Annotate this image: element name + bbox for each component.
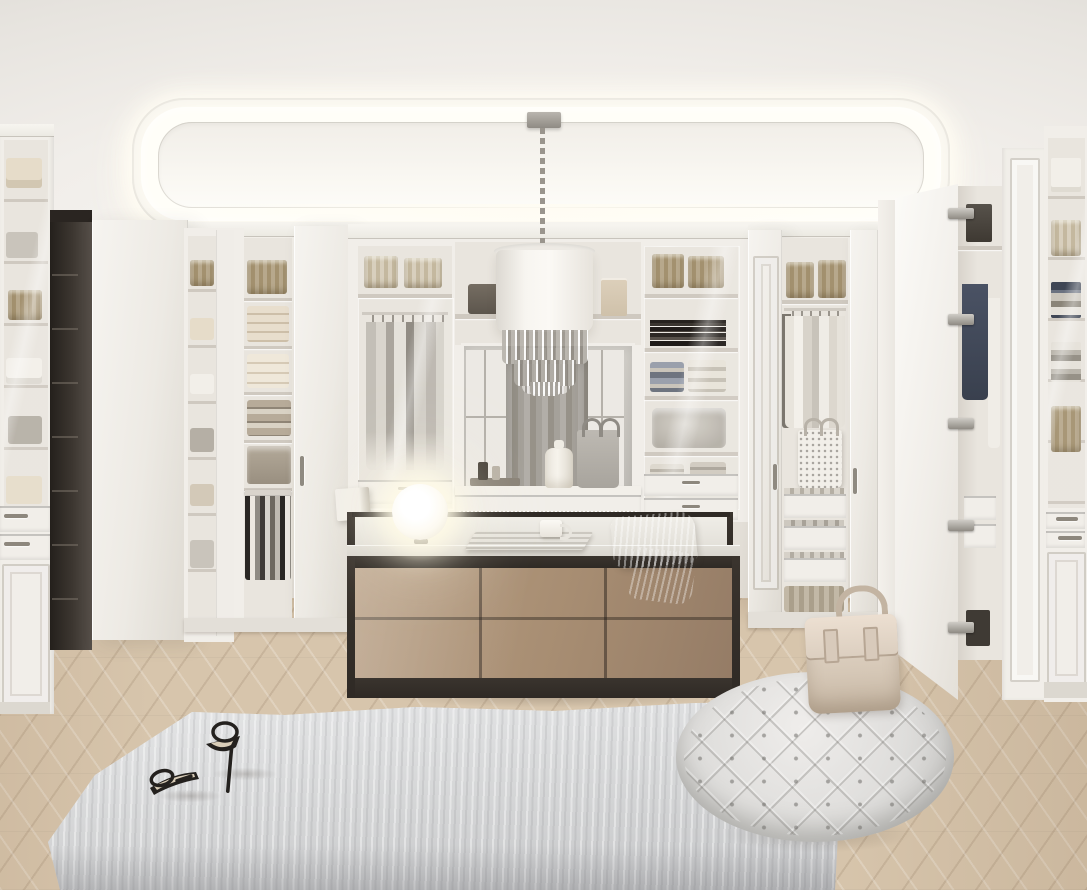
gift-bag xyxy=(601,278,627,316)
door-hinge xyxy=(948,314,974,325)
drawer-handle xyxy=(1058,536,1082,540)
shelf xyxy=(244,440,292,443)
bag-flap xyxy=(804,614,898,659)
navy-garment xyxy=(962,284,988,400)
right-wardrobe-left-door xyxy=(748,230,782,614)
gray-tote-bag xyxy=(577,430,619,488)
sweater-stack xyxy=(247,400,291,436)
center-crown xyxy=(348,224,748,238)
jar-lid xyxy=(554,440,564,449)
shelf xyxy=(244,346,292,349)
open-drawer xyxy=(784,526,846,550)
left-cabinet-drawer xyxy=(0,506,50,532)
walk-in-closet-scene xyxy=(0,0,1087,890)
stiletto-heel xyxy=(226,745,234,793)
door-hinge xyxy=(948,418,974,429)
hanging-shirts xyxy=(785,316,845,428)
perforated-tote xyxy=(798,430,842,488)
island-plinth xyxy=(355,678,732,698)
storage-bin xyxy=(190,540,214,568)
left-wardrobe-open-door xyxy=(294,226,352,618)
tote-handle xyxy=(600,418,620,437)
right-wardrobe-interior xyxy=(782,238,848,614)
left-cabinet-plinth xyxy=(0,702,50,714)
tote-handle xyxy=(820,418,839,436)
bag-strap xyxy=(863,627,880,662)
right-wardrobe-right-door xyxy=(850,230,878,632)
island-side-frame xyxy=(732,556,740,698)
right-glass-cabinet xyxy=(1044,126,1087,702)
door-hinge xyxy=(948,520,974,531)
stiletto-sandals xyxy=(140,712,280,822)
sphere-lamp xyxy=(392,484,448,540)
left-cabinet-crown xyxy=(0,124,54,136)
shelf xyxy=(244,392,292,395)
perfume-bottle xyxy=(492,466,500,480)
cream-handbag xyxy=(797,583,908,718)
fabric-bin xyxy=(247,446,291,484)
door-hinge xyxy=(948,208,974,219)
drawer-handle xyxy=(4,514,28,518)
door-hinge xyxy=(948,622,974,633)
plinth xyxy=(1044,682,1087,698)
hanging-trousers xyxy=(245,496,291,580)
trouser-rack-rail xyxy=(245,490,291,495)
glass-cabinet-right xyxy=(644,246,738,508)
tote-handle xyxy=(582,418,602,437)
chandelier-chain xyxy=(540,128,545,252)
wicker-basket xyxy=(247,260,287,294)
pale-basket xyxy=(404,258,442,288)
white-shirt xyxy=(988,298,1000,448)
towels xyxy=(190,374,214,394)
drawer-handle xyxy=(4,542,30,546)
drawer-handle xyxy=(682,505,700,508)
left-cabinet-door xyxy=(2,564,50,704)
door-handle xyxy=(853,468,857,494)
tower-side-panel xyxy=(216,230,234,636)
wicker-basket xyxy=(818,260,846,298)
crystal-tier-1 xyxy=(502,330,588,364)
ceiling-mount xyxy=(527,112,561,128)
perfume-bottle xyxy=(478,462,488,480)
folded-knit xyxy=(190,428,214,452)
ceramic-jar xyxy=(545,448,573,488)
left-cabinet-drawer xyxy=(0,534,50,560)
lower-drawer xyxy=(644,474,738,496)
pilaster-molding xyxy=(1010,158,1040,682)
drum-shade xyxy=(496,250,593,332)
tower-shelves xyxy=(188,236,216,626)
open-drawer xyxy=(784,558,846,582)
open-drawer xyxy=(784,494,846,518)
box xyxy=(190,484,214,506)
open-magazine xyxy=(465,532,593,550)
open-door-left xyxy=(92,220,188,640)
towel-stack xyxy=(247,354,289,388)
glass-reflection xyxy=(1048,138,1085,508)
door-panel xyxy=(753,256,779,590)
crystal-tier-3 xyxy=(530,382,560,396)
pale-basket xyxy=(364,256,398,288)
door-handle xyxy=(300,456,304,486)
island-side-frame xyxy=(347,556,355,698)
left-glass-cabinet xyxy=(0,124,54,714)
blanket-drape xyxy=(627,546,697,605)
cabinet-door xyxy=(1047,552,1086,684)
pilaster xyxy=(1002,148,1044,700)
bag-strap xyxy=(823,629,840,664)
small-drawer xyxy=(964,496,996,520)
ankle-strap xyxy=(213,723,237,741)
shelf xyxy=(958,246,1002,250)
shelf xyxy=(782,300,848,304)
shelf xyxy=(244,298,292,301)
glass-reflection xyxy=(4,140,48,506)
dark-doorway xyxy=(50,210,92,650)
drawer-handle xyxy=(682,481,700,484)
drawer-handle xyxy=(1056,517,1078,521)
corner-shelf-tower xyxy=(184,228,234,642)
wardrobe-stile xyxy=(234,228,244,620)
sliding-door-panel xyxy=(52,222,78,646)
left-wardrobe-interior xyxy=(244,238,292,620)
towel-stack xyxy=(247,306,289,342)
basket xyxy=(190,260,214,286)
door-handle xyxy=(773,464,777,490)
glass-door xyxy=(644,246,740,510)
mug xyxy=(540,520,562,537)
doorway-lintel xyxy=(50,210,92,222)
left-units-plinth xyxy=(184,618,354,632)
wicker-basket xyxy=(786,262,814,298)
towels xyxy=(190,318,214,340)
